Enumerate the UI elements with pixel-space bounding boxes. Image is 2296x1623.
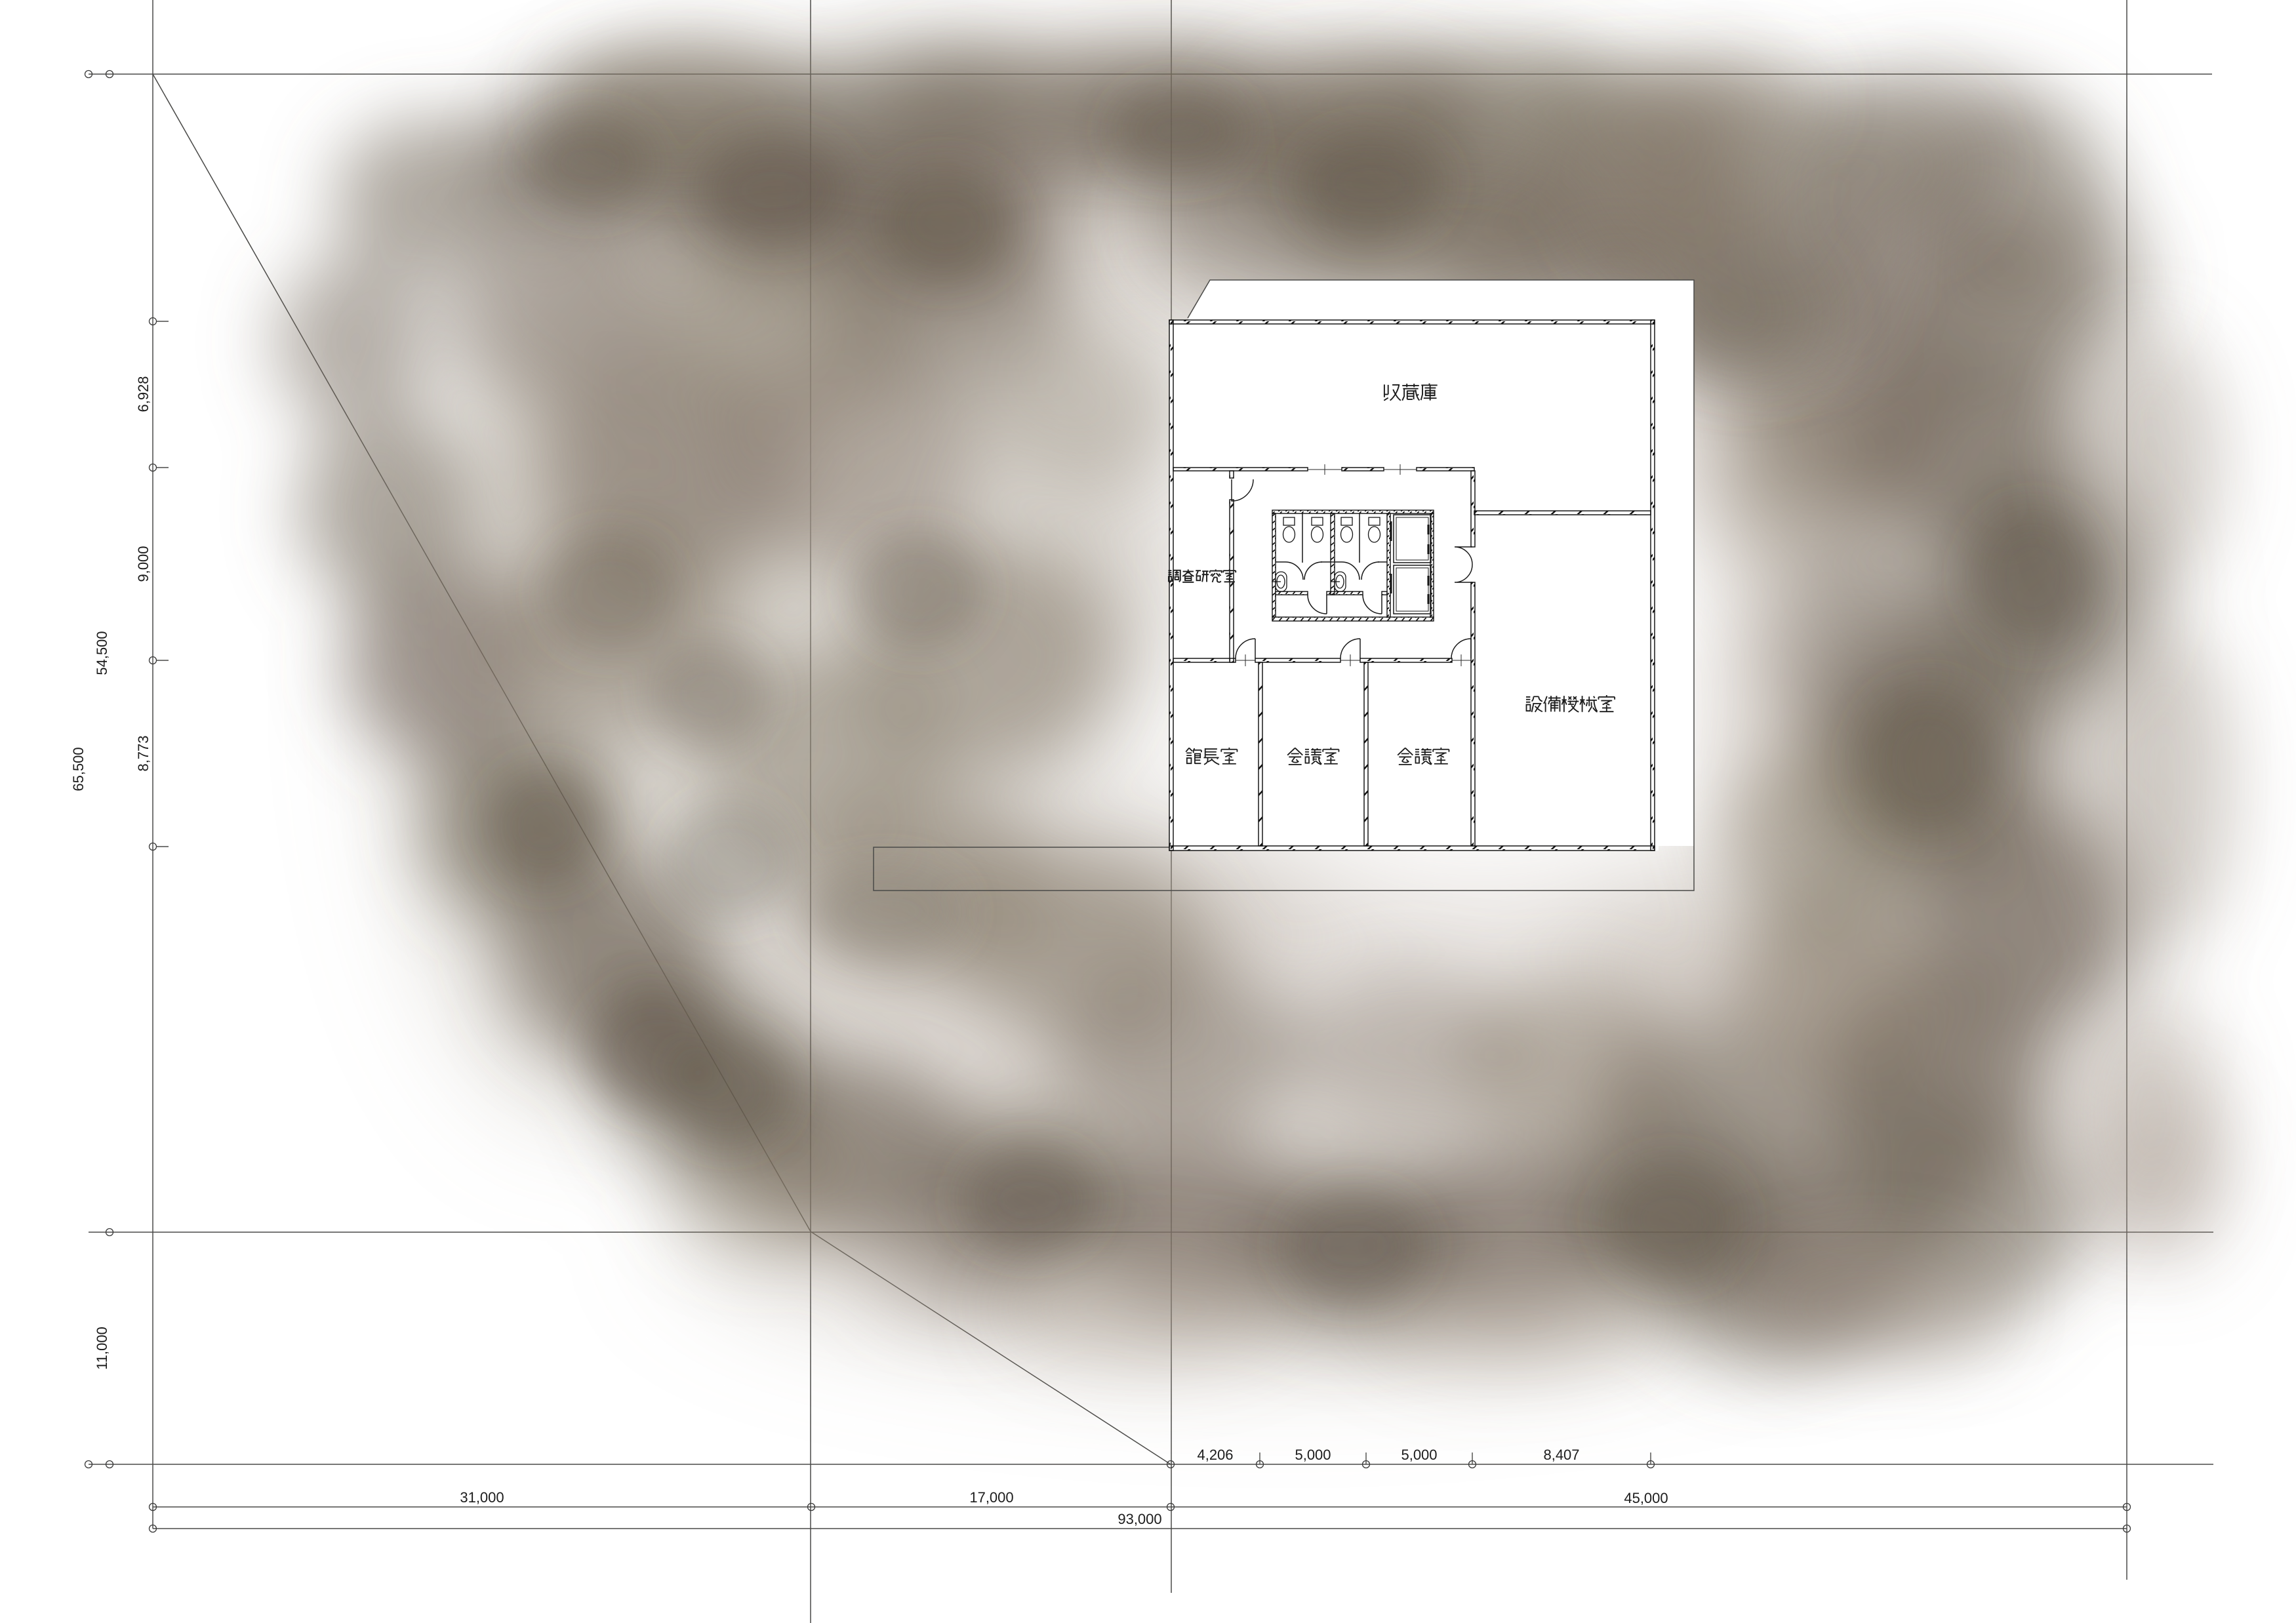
svg-text:65,500: 65,500 [70, 747, 87, 791]
svg-text:9,000: 9,000 [135, 546, 151, 582]
svg-text:93,000: 93,000 [1118, 1511, 1161, 1527]
svg-text:4,206: 4,206 [1197, 1447, 1233, 1463]
svg-text:11,000: 11,000 [94, 1327, 110, 1370]
svg-text:8,407: 8,407 [1543, 1447, 1579, 1463]
svg-text:6,928: 6,928 [135, 376, 151, 412]
svg-text:54,500: 54,500 [94, 631, 110, 675]
svg-text:8,773: 8,773 [135, 735, 151, 771]
svg-text:45,000: 45,000 [1624, 1490, 1668, 1506]
svg-text:17,000: 17,000 [969, 1489, 1013, 1506]
svg-text:5,000: 5,000 [1401, 1447, 1437, 1463]
svg-text:31,000: 31,000 [460, 1489, 504, 1506]
svg-text:5,000: 5,000 [1295, 1447, 1331, 1463]
